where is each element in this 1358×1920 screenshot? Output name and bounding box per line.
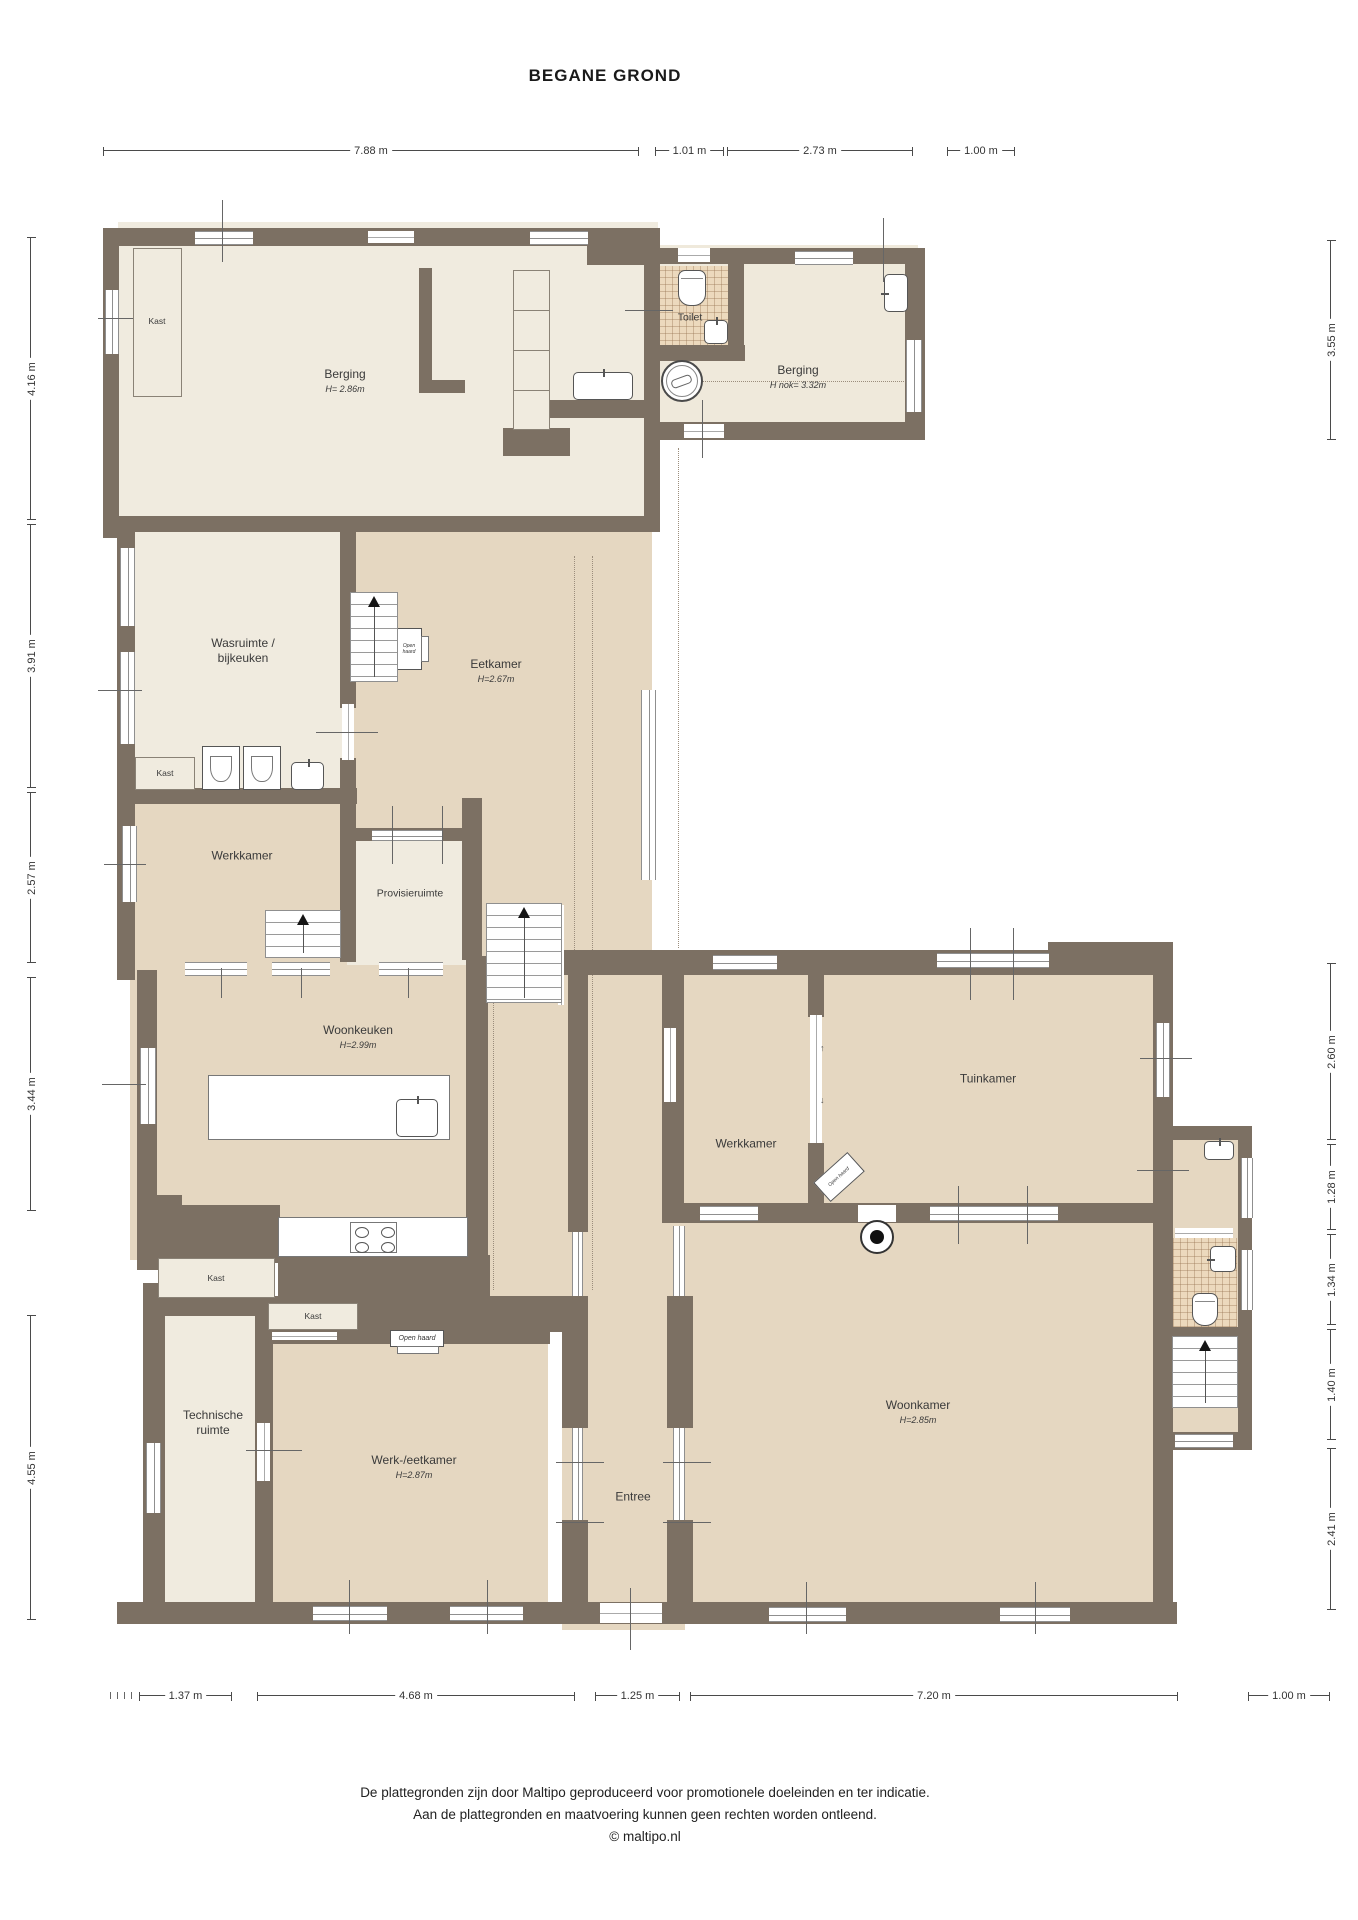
well-icon bbox=[661, 360, 703, 402]
footer-line-1: De plattegronden zijn door Maltipo gepro… bbox=[360, 1782, 930, 1804]
window bbox=[1241, 1158, 1253, 1218]
stairs-up-icon bbox=[1172, 1336, 1238, 1408]
room-label-woonkeuken: WoonkeukenH=2.99m bbox=[323, 1023, 393, 1053]
footer-disclaimer: De plattegronden zijn door Maltipo gepro… bbox=[360, 1782, 930, 1848]
wall bbox=[419, 268, 432, 388]
fireplace-icon: Open haard bbox=[390, 1330, 444, 1347]
wall bbox=[562, 1296, 588, 1428]
room-label-wasruimte: Wasruimte /bijkeuken bbox=[211, 636, 275, 666]
tick bbox=[124, 1692, 125, 1699]
room-label-werkkamer-1: Werkkamer bbox=[211, 849, 272, 864]
room-label-technische-ruimte: Technischeruimte bbox=[183, 1408, 243, 1438]
tick bbox=[702, 400, 703, 458]
window bbox=[769, 1607, 846, 1622]
window bbox=[313, 1606, 387, 1621]
window bbox=[372, 830, 442, 841]
window bbox=[795, 251, 853, 265]
tick bbox=[625, 310, 673, 311]
window bbox=[146, 1443, 161, 1513]
wall bbox=[808, 970, 824, 1017]
window bbox=[140, 1048, 156, 1124]
window bbox=[120, 652, 135, 744]
sink-icon bbox=[573, 372, 633, 400]
wall bbox=[568, 972, 588, 1232]
window bbox=[572, 1428, 583, 1520]
tick bbox=[630, 1588, 631, 1650]
shelves-icon bbox=[513, 270, 550, 430]
tick bbox=[556, 1462, 604, 1463]
room-label-entree: Entree bbox=[615, 1490, 650, 1505]
wall bbox=[667, 1520, 693, 1606]
sink-icon bbox=[884, 274, 908, 312]
window bbox=[673, 1428, 685, 1520]
room-label-werkkamer-2: Werkkamer bbox=[715, 1137, 776, 1152]
room-label-tuinkamer: Tuinkamer bbox=[960, 1072, 1016, 1087]
closet-label: Kast bbox=[207, 1273, 224, 1283]
window bbox=[105, 290, 119, 354]
wall bbox=[117, 516, 660, 532]
window bbox=[530, 231, 588, 245]
dimension-right-2: 1.28 m bbox=[1330, 1144, 1331, 1230]
wall bbox=[340, 758, 356, 962]
stairs-up-icon bbox=[265, 910, 341, 958]
window bbox=[700, 1206, 758, 1221]
room-label-provisieruimte: Provisieruimte bbox=[377, 887, 444, 902]
cooktop-icon bbox=[350, 1222, 397, 1253]
dimension-right-0: 3.55 m bbox=[1330, 240, 1331, 440]
footer-line-3: © maltipo.nl bbox=[360, 1826, 930, 1848]
door bbox=[684, 424, 724, 438]
floor-provisieruimte bbox=[347, 838, 480, 968]
sliding-glass-door bbox=[810, 1015, 822, 1143]
tick bbox=[970, 928, 971, 1000]
tick bbox=[663, 1522, 711, 1523]
room-label-werk-eetkamer: Werk-/eetkamerH=2.87m bbox=[371, 1453, 456, 1483]
dotted-line bbox=[592, 556, 593, 1290]
tick bbox=[806, 1582, 807, 1634]
stairs-up-icon bbox=[486, 903, 562, 1003]
dotted-line bbox=[678, 448, 679, 948]
tick bbox=[1035, 1582, 1036, 1634]
window bbox=[120, 548, 135, 626]
tick bbox=[883, 218, 884, 282]
washing-machine-icon bbox=[202, 746, 240, 790]
wall bbox=[103, 228, 119, 538]
tick bbox=[663, 1462, 711, 1463]
wall bbox=[543, 400, 660, 418]
tick bbox=[102, 1084, 146, 1085]
tick bbox=[131, 1692, 132, 1699]
window bbox=[713, 955, 777, 970]
wall bbox=[419, 380, 465, 393]
window bbox=[930, 1206, 1058, 1221]
door bbox=[1175, 1228, 1233, 1238]
dimension-right-3: 1.34 m bbox=[1330, 1234, 1331, 1325]
sink-icon bbox=[291, 762, 324, 790]
window bbox=[1175, 1434, 1233, 1448]
tick bbox=[408, 968, 409, 998]
sink-icon bbox=[396, 1099, 438, 1137]
door bbox=[664, 1028, 676, 1102]
window bbox=[185, 962, 247, 976]
tick bbox=[392, 806, 393, 864]
tick bbox=[110, 1692, 111, 1699]
window bbox=[641, 690, 656, 880]
tick bbox=[246, 1450, 302, 1451]
entrance-door bbox=[600, 1603, 662, 1623]
dimension-bottom-4: 1.00 m bbox=[1248, 1695, 1330, 1696]
fireplace-icon bbox=[397, 1346, 439, 1354]
tick bbox=[316, 732, 378, 733]
stairs-up-icon bbox=[350, 592, 398, 682]
dimension-left-1: 3.91 m bbox=[30, 524, 31, 788]
room-label-eetkamer: EetkamerH=2.67m bbox=[470, 657, 521, 687]
dimension-bottom-3: 7.20 m bbox=[690, 1695, 1178, 1696]
toilet-icon bbox=[1192, 1293, 1218, 1326]
window bbox=[379, 962, 443, 976]
fireplace-icon bbox=[421, 636, 429, 662]
tick bbox=[1137, 1170, 1189, 1171]
stove-icon bbox=[860, 1220, 894, 1254]
tick bbox=[487, 1580, 488, 1634]
tick bbox=[117, 1692, 118, 1699]
tick bbox=[301, 968, 302, 998]
dimension-right-5: 2.41 m bbox=[1330, 1448, 1331, 1610]
sink-icon bbox=[704, 320, 728, 344]
dimension-left-4: 4.55 m bbox=[30, 1315, 31, 1620]
dimension-top-1: 1.01 m bbox=[655, 150, 724, 151]
wall bbox=[155, 1205, 280, 1263]
door bbox=[368, 231, 414, 243]
dimension-bottom-1: 4.68 m bbox=[257, 1695, 575, 1696]
tick bbox=[104, 864, 146, 865]
dimension-bottom-2: 1.25 m bbox=[595, 1695, 680, 1696]
page-title: BEGANE GROND bbox=[529, 66, 682, 86]
wall bbox=[1153, 1020, 1173, 1607]
dimension-left-3: 3.44 m bbox=[30, 977, 31, 1211]
fireplace-icon: Open haard bbox=[396, 628, 422, 670]
wall bbox=[667, 1296, 693, 1428]
wall bbox=[562, 1520, 588, 1606]
dimension-top-0: 7.88 m bbox=[103, 150, 639, 151]
window bbox=[195, 231, 253, 245]
sink-icon bbox=[1210, 1246, 1236, 1272]
room-label-toilet: Toilet bbox=[678, 311, 703, 326]
dimension-top-3: 1.00 m bbox=[947, 150, 1015, 151]
wall bbox=[644, 248, 660, 532]
wall bbox=[503, 428, 570, 456]
washing-machine-icon bbox=[243, 746, 281, 790]
window bbox=[572, 1232, 583, 1296]
room-label-berging-1: BergingH= 2.86m bbox=[324, 367, 365, 397]
wall bbox=[462, 798, 482, 960]
window bbox=[937, 953, 1049, 968]
dimension-top-2: 2.73 m bbox=[727, 150, 913, 151]
dotted-line bbox=[493, 980, 494, 1290]
tick bbox=[1013, 928, 1014, 1000]
closet-label: Kast bbox=[304, 1311, 321, 1321]
sink-icon bbox=[1204, 1141, 1234, 1160]
tick bbox=[1027, 1186, 1028, 1244]
dimension-left-2: 2.57 m bbox=[30, 792, 31, 963]
floor-tuinkamer-werkkamer2 bbox=[683, 965, 1153, 1210]
sliding-door bbox=[272, 1332, 337, 1340]
dimension-left-0: 4.16 m bbox=[30, 237, 31, 520]
dimension-bottom-0: 1.37 m bbox=[139, 1695, 232, 1696]
arrow-down-icon: ↓ bbox=[820, 1096, 825, 1105]
tick bbox=[98, 690, 142, 691]
tick bbox=[221, 968, 222, 998]
room-label-woonkamer: WoonkamerH=2.85m bbox=[886, 1398, 950, 1428]
wall bbox=[466, 956, 488, 1304]
toilet-icon bbox=[678, 270, 706, 306]
room-label-berging-2: BergingH nok= 3.32m bbox=[770, 363, 826, 393]
wall bbox=[644, 345, 745, 361]
floor-hall-west bbox=[488, 975, 562, 1305]
wall bbox=[1153, 942, 1173, 1020]
door bbox=[257, 1423, 270, 1481]
wall bbox=[808, 1143, 824, 1203]
tick bbox=[442, 806, 443, 864]
footer-line-2: Aan de plattegronden en maatvoering kunn… bbox=[360, 1804, 930, 1826]
wall bbox=[117, 788, 357, 804]
wall bbox=[358, 1296, 568, 1332]
dimension-right-1: 2.60 m bbox=[1330, 963, 1331, 1140]
arrow-up-icon: ↑ bbox=[820, 1044, 825, 1053]
tick bbox=[958, 1186, 959, 1244]
tick bbox=[1140, 1058, 1192, 1059]
floorplan-canvas: BEGANE GROND bbox=[0, 0, 1358, 1920]
window bbox=[906, 340, 922, 412]
window bbox=[673, 1226, 685, 1296]
tick bbox=[349, 1580, 350, 1634]
door bbox=[678, 248, 710, 262]
closet-label: Kast bbox=[148, 316, 165, 326]
window bbox=[1156, 1023, 1170, 1097]
tick bbox=[556, 1522, 604, 1523]
tick bbox=[222, 200, 223, 262]
dimension-right-4: 1.40 m bbox=[1330, 1329, 1331, 1440]
window bbox=[1241, 1250, 1253, 1310]
closet-label: Kast bbox=[156, 768, 173, 778]
